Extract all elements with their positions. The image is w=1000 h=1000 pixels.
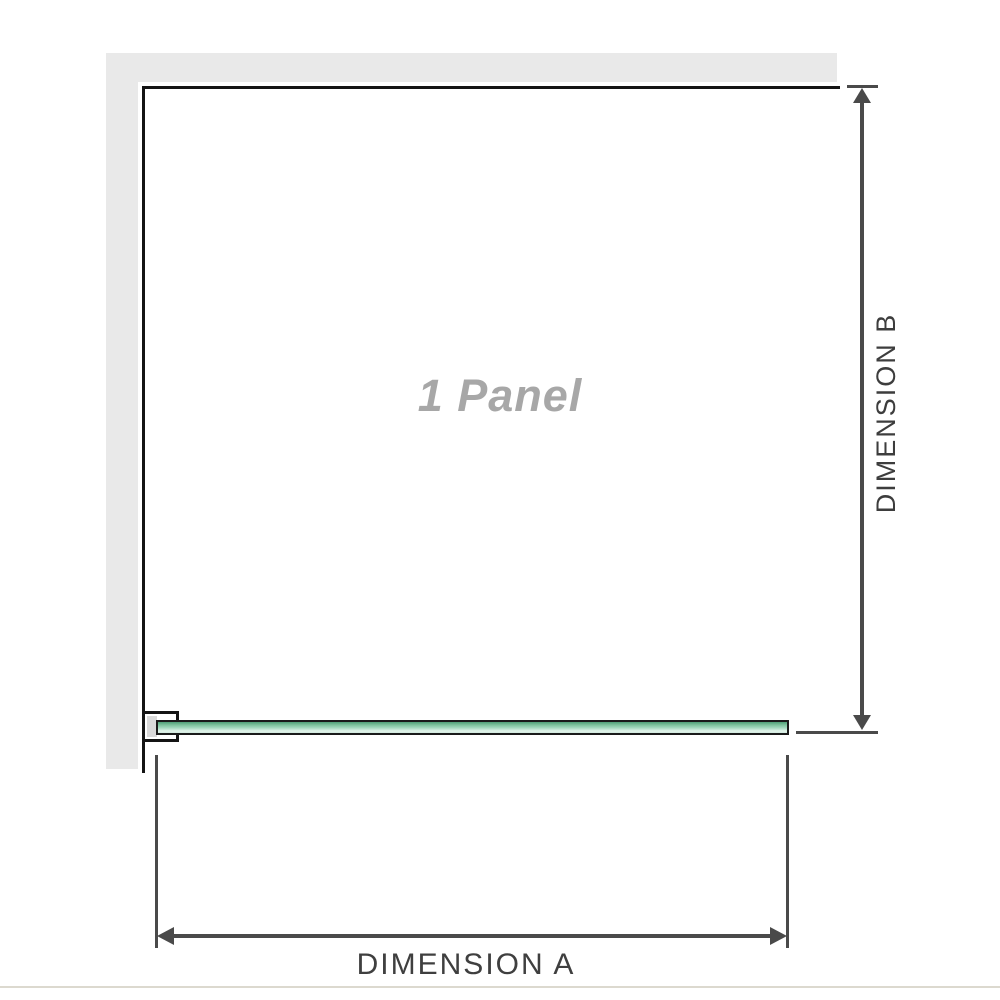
dimension-b-bottom-tick [796, 731, 878, 734]
glass-panel-top-view [156, 720, 789, 735]
panel-dimension-diagram: 1 Panel DIMENSION B DIMENSION A [0, 0, 1000, 1000]
dimension-a-right-extension-line [786, 755, 789, 948]
arrow-right-icon [770, 927, 787, 945]
arrow-up-icon [853, 88, 871, 103]
wall-inner-edge-outline [142, 86, 840, 773]
arrow-down-icon [853, 715, 871, 730]
dimension-a-line [171, 934, 772, 938]
dimension-b-line [860, 95, 864, 717]
page-divider-line [0, 986, 1000, 988]
arrow-left-icon [157, 927, 174, 945]
wall-top [106, 53, 837, 82]
panel-count-label: 1 Panel [350, 370, 650, 422]
dimension-a-label: DIMENSION A [316, 948, 616, 982]
wall-left [106, 53, 138, 769]
dimension-b-label: DIMENSION B [871, 263, 901, 563]
dimension-a-left-extension-line [155, 755, 158, 948]
